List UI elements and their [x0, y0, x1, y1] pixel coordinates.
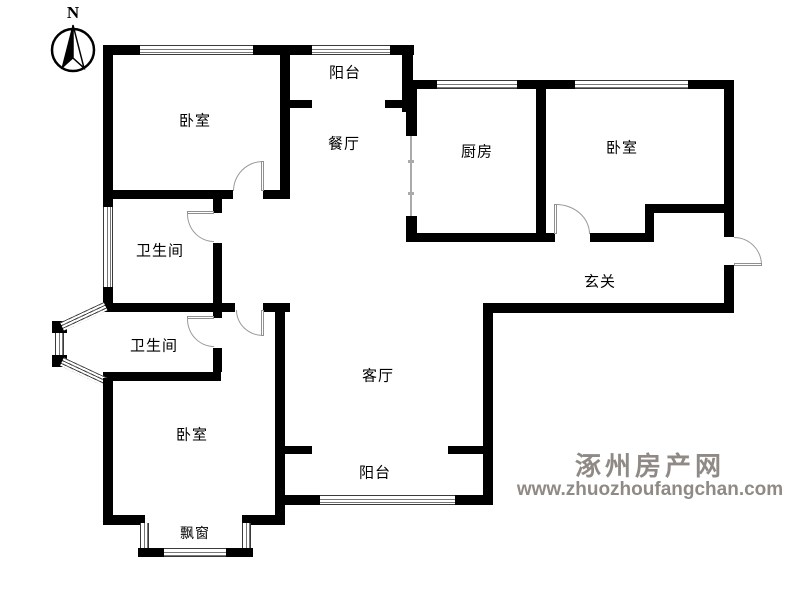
window-angled [60, 357, 107, 385]
wall-segment [263, 190, 290, 199]
wall-segment [103, 378, 113, 525]
sliding-door-tick [408, 192, 414, 195]
wall-segment [213, 197, 222, 213]
room-label-kitchen: 厨房 [461, 141, 493, 162]
watermark-site-name: 涿州房产网 [515, 453, 785, 479]
wall-segment [648, 204, 734, 213]
wall-segment [536, 80, 546, 242]
room-label-living: 客厅 [362, 365, 394, 386]
wall-segment [275, 303, 285, 525]
door-arc [556, 204, 590, 234]
wall-segment [280, 45, 290, 197]
watermark: 涿州房产网 www.zhuozhoufangchan.com [515, 453, 785, 501]
north-arrow-icon [48, 22, 98, 74]
wall-segment [483, 303, 493, 505]
wall-segment [285, 495, 320, 505]
wall-segment [283, 100, 312, 108]
wall-segment [448, 446, 490, 454]
compass-north-label: N [44, 4, 102, 22]
wall-segment [138, 548, 164, 557]
wall-segment [590, 233, 652, 242]
room-label-bay-window: 飘窗 [180, 523, 210, 543]
wall-segment [285, 446, 312, 454]
window [320, 495, 455, 505]
wall-segment [483, 303, 734, 313]
wall-segment [517, 80, 575, 89]
window [103, 207, 113, 287]
window [164, 548, 226, 557]
wall-segment [213, 348, 222, 372]
wall-segment [213, 243, 222, 303]
wall-segment [406, 80, 417, 136]
window [55, 333, 64, 355]
window-angled [60, 302, 107, 330]
window [437, 80, 517, 89]
door-leaf [187, 211, 214, 214]
room-label-bedroom-top-left: 卧室 [179, 110, 211, 131]
sliding-door-tick [408, 160, 414, 163]
door-arc [236, 310, 263, 336]
wall-segment [103, 372, 221, 381]
floor-plan: N [0, 0, 800, 600]
door-arc [187, 319, 214, 347]
entry-door-leaf [734, 263, 762, 266]
door-leaf [187, 316, 214, 319]
room-label-entry-hall: 玄关 [584, 271, 616, 292]
watermark-site-url: www.zhuozhoufangchan.com [515, 479, 785, 501]
window [575, 80, 688, 89]
room-label-balcony-top: 阳台 [329, 62, 361, 83]
room-label-bathroom-lower: 卫生间 [130, 335, 178, 356]
window [242, 523, 251, 550]
door-leaf [261, 161, 264, 191]
wall-segment [213, 303, 222, 318]
entry-door-arc [734, 237, 762, 265]
room-label-balcony-bottom: 阳台 [359, 462, 391, 483]
window [140, 523, 149, 550]
door-leaf [261, 310, 264, 336]
wall-segment [385, 100, 413, 108]
wall-segment [103, 45, 113, 207]
wall-segment [226, 548, 253, 557]
room-label-bathroom-upper: 卫生间 [136, 240, 184, 261]
room-label-bedroom-top-right: 卧室 [606, 137, 638, 158]
wall-segment [724, 80, 734, 237]
window [140, 45, 253, 55]
room-label-bedroom-bottom: 卧室 [176, 424, 208, 445]
door-arc [187, 214, 214, 242]
room-label-dining: 餐厅 [328, 133, 360, 154]
wall-segment [455, 495, 490, 505]
wall-segment [103, 515, 145, 525]
window [312, 45, 390, 55]
door-leaf [554, 204, 557, 234]
wall-segment [406, 233, 555, 242]
door-arc [233, 161, 263, 191]
sliding-door [410, 136, 412, 216]
compass: N [44, 4, 102, 79]
